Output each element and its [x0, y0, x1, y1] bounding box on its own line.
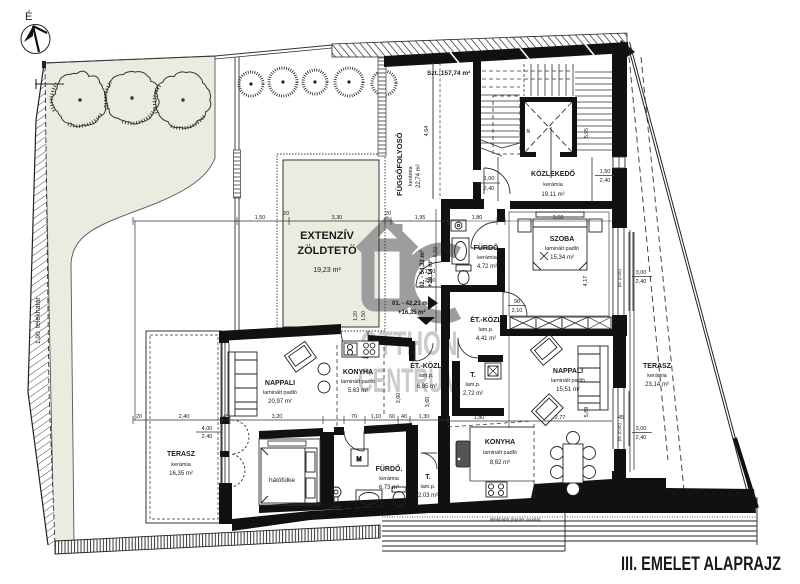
- svg-text:1,10: 1,10: [371, 414, 382, 420]
- svg-text:45: 45: [618, 415, 624, 421]
- svg-text:lam.p.: lam.p.: [419, 373, 434, 379]
- svg-text:laminált padló: laminált padló: [341, 379, 375, 385]
- svg-text:1,50: 1,50: [255, 215, 266, 221]
- svg-text:20: 20: [385, 211, 391, 217]
- svg-text:40: 40: [401, 414, 407, 420]
- svg-text:KÖZLEKEDŐ: KÖZLEKEDŐ: [531, 169, 576, 178]
- svg-text:45: 45: [223, 414, 229, 420]
- svg-text:22,74 m²: 22,74 m²: [416, 164, 422, 188]
- svg-text:TERASZ: TERASZ: [167, 451, 196, 458]
- svg-text:1,80: 1,80: [474, 415, 485, 421]
- svg-text:23,14 m²: 23,14 m²: [645, 382, 669, 388]
- svg-text:15,51 m²: 15,51 m²: [556, 387, 580, 393]
- svg-text:3,60: 3,60: [396, 393, 402, 404]
- svg-text:lam.p.: lam.p.: [479, 327, 494, 333]
- svg-text:19,11 m²: 19,11 m²: [541, 192, 564, 198]
- svg-text:3,30: 3,30: [332, 215, 343, 221]
- svg-text:2,40: 2,40: [636, 279, 647, 285]
- svg-text:FÜRDŐ.: FÜRDŐ.: [474, 243, 501, 252]
- svg-text:Szt.:157,74 m²: Szt.:157,74 m²: [427, 70, 471, 77]
- svg-text:T.: T.: [425, 474, 431, 481]
- svg-text:1,90: 1,90: [35, 331, 42, 344]
- svg-text:hálófülke: hálófülke: [269, 477, 295, 484]
- svg-text:4,00: 4,00: [202, 426, 213, 432]
- svg-text:16,35 m²: 16,35 m²: [169, 471, 193, 477]
- svg-text:kerámia: kerámia: [477, 255, 498, 261]
- svg-text:6,85 m²: 6,85 m²: [417, 384, 437, 390]
- svg-text:2,40: 2,40: [636, 435, 647, 441]
- svg-text:70: 70: [351, 414, 357, 420]
- svg-text:5,69: 5,69: [584, 407, 590, 418]
- svg-text:ÉT.-KÖZL: ÉT.-KÖZL: [470, 315, 502, 324]
- svg-text:FÜGGŐFOLYOSÓ: FÜGGŐFOLYOSÓ: [395, 132, 404, 196]
- svg-text:2,72 m²: 2,72 m²: [463, 391, 483, 397]
- svg-text:3,20: 3,20: [272, 414, 283, 420]
- svg-text:EXTENZÍV: EXTENZÍV: [300, 229, 354, 242]
- svg-text:NAPPALI: NAPPALI: [265, 380, 295, 387]
- svg-text:4,41 m²: 4,41 m²: [476, 336, 496, 342]
- svg-text:KONYHA: KONYHA: [343, 369, 373, 376]
- svg-text:4,64: 4,64: [424, 126, 430, 137]
- svg-text:laminált padló: laminált padló: [483, 450, 517, 456]
- svg-text:KONYHA: KONYHA: [485, 439, 515, 446]
- svg-text:laminált padló: laminált padló: [545, 246, 579, 252]
- svg-text:1,00: 1,00: [484, 176, 495, 182]
- svg-text:kerámia: kerámia: [408, 165, 414, 186]
- svg-text:90: 90: [514, 299, 520, 305]
- svg-text:É: É: [25, 10, 32, 23]
- svg-text:telekhatár (épület vonala): telekhatár (épület vonala): [490, 517, 541, 522]
- svg-text:kerámia: kerámia: [379, 476, 400, 482]
- svg-text:+28,14 m²: +28,14 m²: [427, 259, 434, 287]
- svg-text:20: 20: [283, 211, 289, 217]
- svg-text:III. EMELET ALAPRAJZ: III. EMELET ALAPRAJZ: [621, 554, 781, 575]
- svg-text:15,34 m²: 15,34 m²: [550, 255, 574, 261]
- svg-text:laminált padló: laminált padló: [551, 378, 585, 384]
- svg-text:2,40: 2,40: [600, 178, 611, 184]
- svg-text:+16,35 m²: +16,35 m²: [398, 309, 426, 316]
- svg-text:1,95: 1,95: [415, 215, 426, 221]
- svg-text:kerámia: kerámia: [543, 182, 564, 188]
- svg-text:lift: lift: [526, 128, 531, 133]
- svg-text:3,68: 3,68: [553, 215, 564, 221]
- svg-text:ÉT.-KÖZL: ÉT.-KÖZL: [410, 361, 442, 370]
- svg-text:lam.p.: lam.p.: [421, 484, 436, 490]
- svg-text:19,23 m²: 19,23 m²: [313, 267, 341, 274]
- svg-text:ps. (0,00): ps. (0,00): [617, 423, 622, 441]
- svg-text:3,00: 3,00: [636, 270, 647, 276]
- svg-text:TERASZ: TERASZ: [643, 363, 672, 370]
- svg-text:1,30: 1,30: [419, 414, 430, 420]
- svg-text:5,95: 5,95: [584, 128, 590, 138]
- svg-text:8,62 m²: 8,62 m²: [490, 460, 510, 466]
- svg-text:telekhatár: telekhatár: [35, 297, 42, 328]
- svg-text:6,73 m²: 6,73 m²: [379, 485, 399, 491]
- svg-text:3,00: 3,00: [636, 426, 647, 432]
- svg-text:laminált padló: laminált padló: [263, 390, 297, 396]
- svg-text:20,97 m²: 20,97 m²: [268, 399, 292, 405]
- svg-text:2,03 m²: 2,03 m²: [418, 493, 438, 499]
- svg-text:2,77: 2,77: [555, 415, 566, 421]
- svg-text:ZÖLDTETÖ: ZÖLDTETÖ: [297, 244, 357, 257]
- svg-text:10: 10: [499, 215, 505, 221]
- svg-text:kerámia: kerámia: [171, 462, 192, 468]
- svg-text:4,17: 4,17: [583, 276, 589, 287]
- svg-text:lam.p.: lam.p.: [466, 382, 481, 388]
- svg-text:20: 20: [136, 414, 142, 420]
- svg-text:2,40: 2,40: [179, 414, 190, 420]
- svg-text:2,10: 2,10: [512, 308, 523, 314]
- svg-text:02. - 54,32 m²: 02. - 54,32 m²: [419, 250, 426, 288]
- svg-text:FÜRDŐ.: FÜRDŐ.: [376, 464, 403, 473]
- svg-text:M: M: [357, 457, 362, 463]
- svg-text:ps. (0,00): ps. (0,00): [617, 269, 622, 287]
- svg-text:2,40: 2,40: [484, 186, 495, 192]
- svg-text:SZOBA: SZOBA: [550, 236, 575, 243]
- svg-text:kerámia: kerámia: [647, 373, 668, 379]
- svg-text:1,50: 1,50: [361, 311, 367, 321]
- svg-text:NAPPALI: NAPPALI: [553, 368, 583, 375]
- svg-text:5,02: 5,02: [433, 247, 439, 258]
- svg-text:1,80: 1,80: [472, 215, 483, 221]
- svg-text:1,20: 1,20: [353, 311, 359, 321]
- svg-text:4,72 m²: 4,72 m²: [477, 264, 497, 270]
- svg-text:T.: T.: [470, 372, 476, 379]
- svg-text:2,40: 2,40: [202, 434, 213, 440]
- svg-text:01. - 42,21 m²: 01. - 42,21 m²: [392, 300, 430, 307]
- svg-text:3,60: 3,60: [425, 397, 431, 408]
- svg-text:60: 60: [389, 414, 395, 420]
- svg-text:1,50: 1,50: [600, 169, 611, 175]
- svg-text:5,63 m²: 5,63 m²: [348, 388, 368, 394]
